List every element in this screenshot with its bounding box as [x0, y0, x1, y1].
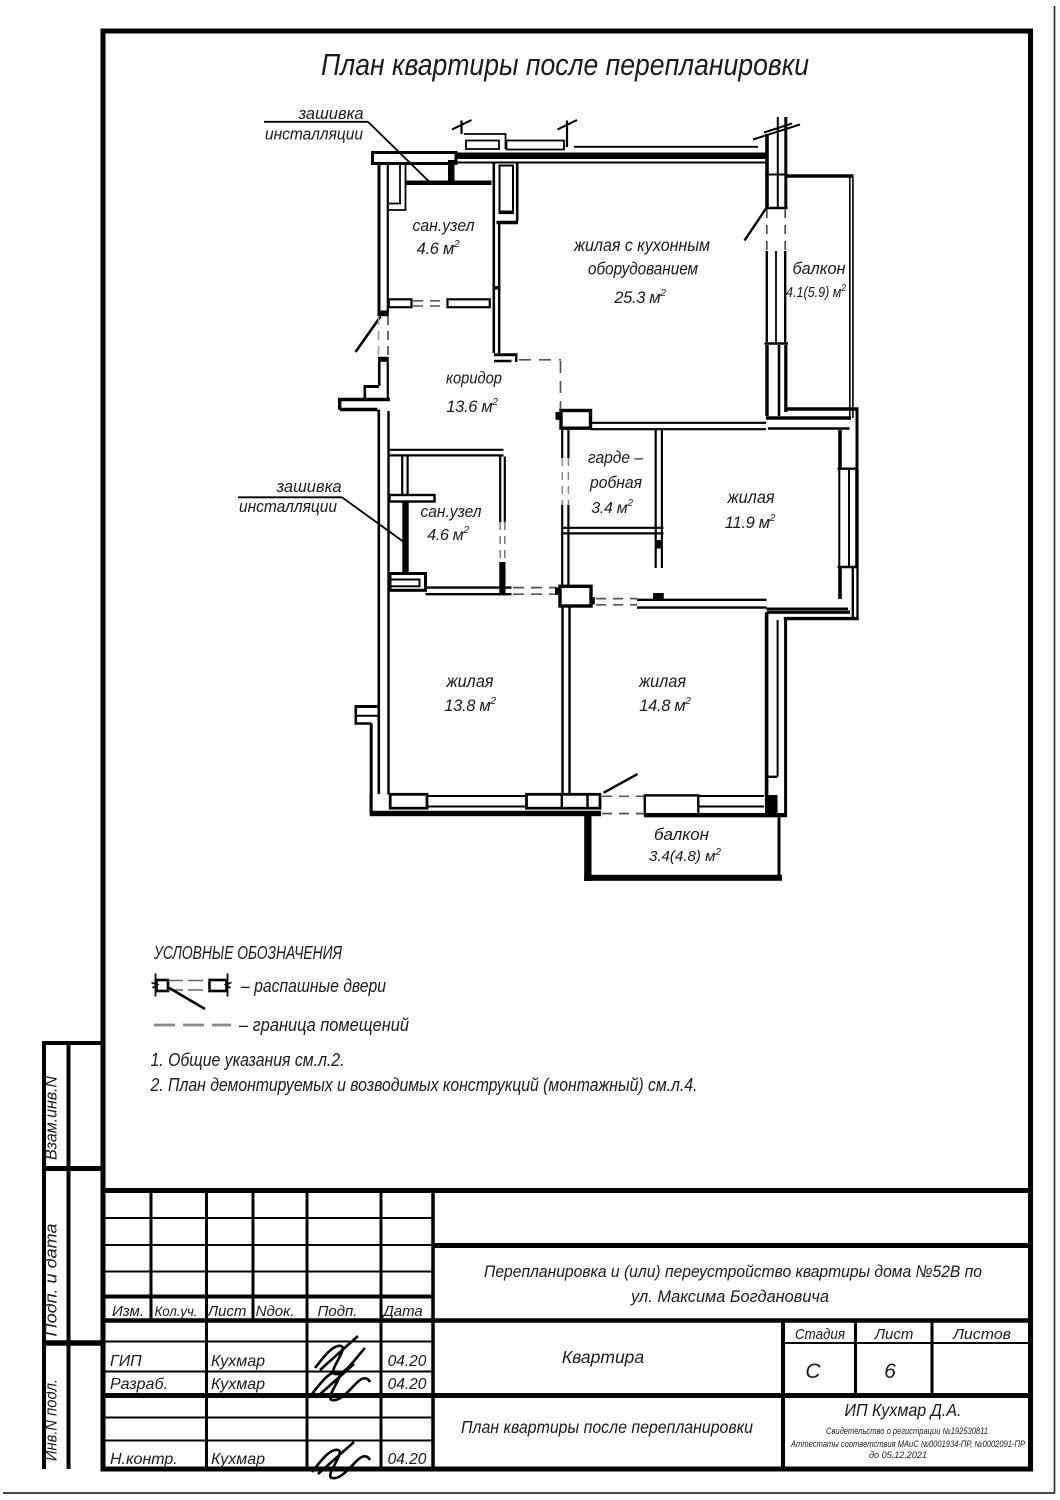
svg-text:Кухмар: Кухмар: [211, 1353, 265, 1370]
svg-text:гарде –: гарде –: [588, 449, 644, 467]
svg-text:04.20: 04.20: [388, 1376, 427, 1393]
svg-text:План квартиры после переплани: План квартиры после перепланировки: [461, 1417, 753, 1437]
svg-text:Лист: Лист: [207, 1303, 247, 1320]
svg-text:3.4 м2: 3.4 м2: [591, 498, 633, 517]
svg-text:зашивка: зашивка: [275, 478, 341, 496]
svg-text:13.8 м2: 13.8 м2: [444, 696, 496, 715]
svg-text:жилая: жилая: [638, 671, 686, 691]
svg-text:оборудованием: оборудованием: [588, 259, 698, 279]
svg-text:ул. Максима Богдановича: ул. Максима Богдановича: [630, 1287, 829, 1306]
svg-text:коридор: коридор: [446, 369, 502, 388]
svg-text:инсталляции: инсталляции: [239, 498, 337, 516]
svg-text:Перепланировка и (или) переуст: Перепланировка и (или) переустройство кв…: [484, 1262, 982, 1281]
svg-text:Листов: Листов: [952, 1326, 1011, 1343]
svg-text:балкон: балкон: [793, 260, 846, 278]
svg-text:УСЛОВНЫЕ ОБОЗНАЧЕНИЯ: УСЛОВНЫЕ ОБОЗНАЧЕНИЯ: [153, 943, 342, 963]
svg-text:сан.узел: сан.узел: [421, 503, 482, 521]
svg-text:ИП Кухмар Д.А.: ИП Кухмар Д.А.: [845, 1400, 962, 1420]
svg-text:2. План демонтируемых и возвод: 2. План демонтируемых и возводимых конст…: [150, 1075, 698, 1095]
svg-text:Свидетельство о регистрации №1: Свидетельство о регистрации №192530811: [826, 1426, 988, 1436]
svg-text:Дата: Дата: [381, 1303, 423, 1320]
svg-text:25.3 м2: 25.3 м2: [613, 288, 666, 307]
svg-text:зашивка: зашивка: [297, 105, 363, 123]
svg-text:Разраб.: Разраб.: [110, 1376, 168, 1393]
svg-text:– распашные двери: – распашные двери: [240, 976, 386, 996]
svg-text:13.6 м2: 13.6 м2: [446, 397, 498, 416]
svg-text:жилая с кухонным: жилая с кухонным: [573, 235, 710, 255]
svg-text:14.8 м2: 14.8 м2: [639, 696, 691, 715]
svg-text:робная: робная: [589, 474, 642, 492]
svg-text:Аттестаты соответствия МАиС №0: Аттестаты соответствия МАиС №0001934-ПР,…: [790, 1439, 1025, 1449]
svg-text:4.6 м2: 4.6 м2: [427, 525, 469, 544]
svg-text:Взам.инв.N: Взам.инв.N: [43, 1076, 61, 1160]
svg-text:сан.узел: сан.узел: [413, 216, 475, 235]
svg-text:Стадия: Стадия: [795, 1326, 845, 1343]
svg-text:до 05.12.2021: до 05.12.2021: [869, 1450, 927, 1460]
svg-text:инсталляции: инсталляции: [265, 126, 363, 144]
svg-text:План квартиры после перепланир: План квартиры после перепланировки: [321, 48, 809, 82]
svg-text:Кол.уч.: Кол.уч.: [155, 1303, 198, 1319]
svg-text:Лист: Лист: [874, 1326, 914, 1343]
svg-text:3.4(4.8) м2: 3.4(4.8) м2: [649, 847, 721, 865]
svg-text:Кухмар: Кухмар: [211, 1451, 265, 1468]
svg-text:11.9 м2: 11.9 м2: [725, 513, 776, 532]
svg-text:Квартира: Квартира: [562, 1347, 645, 1367]
svg-text:Подп.: Подп.: [318, 1303, 358, 1320]
svg-text:С: С: [805, 1360, 821, 1383]
svg-text:Nдок.: Nдок.: [256, 1303, 295, 1320]
svg-text:04.20: 04.20: [388, 1353, 427, 1370]
svg-text:– граница помещений: – граница помещений: [238, 1015, 409, 1035]
svg-text:Н.контр.: Н.контр.: [110, 1451, 178, 1468]
svg-text:4.6 м2: 4.6 м2: [417, 239, 460, 258]
svg-text:04.20: 04.20: [388, 1451, 427, 1468]
svg-text:ГИП: ГИП: [110, 1353, 142, 1370]
svg-text:Подп. и дата: Подп. и дата: [43, 1224, 61, 1337]
svg-text:балкон: балкон: [654, 826, 709, 844]
svg-text:4.1(5.9) м2: 4.1(5.9) м2: [786, 283, 846, 301]
svg-text:Инв.N подл.: Инв.N подл.: [43, 1379, 61, 1461]
svg-text:жилая: жилая: [727, 487, 775, 507]
svg-text:6: 6: [884, 1360, 896, 1383]
svg-text:1. Общие указания см.л.2.: 1. Общие указания см.л.2.: [151, 1050, 345, 1070]
svg-text:Изм.: Изм.: [112, 1303, 144, 1320]
svg-text:жилая: жилая: [446, 671, 494, 691]
svg-text:Кухмар: Кухмар: [211, 1376, 265, 1393]
